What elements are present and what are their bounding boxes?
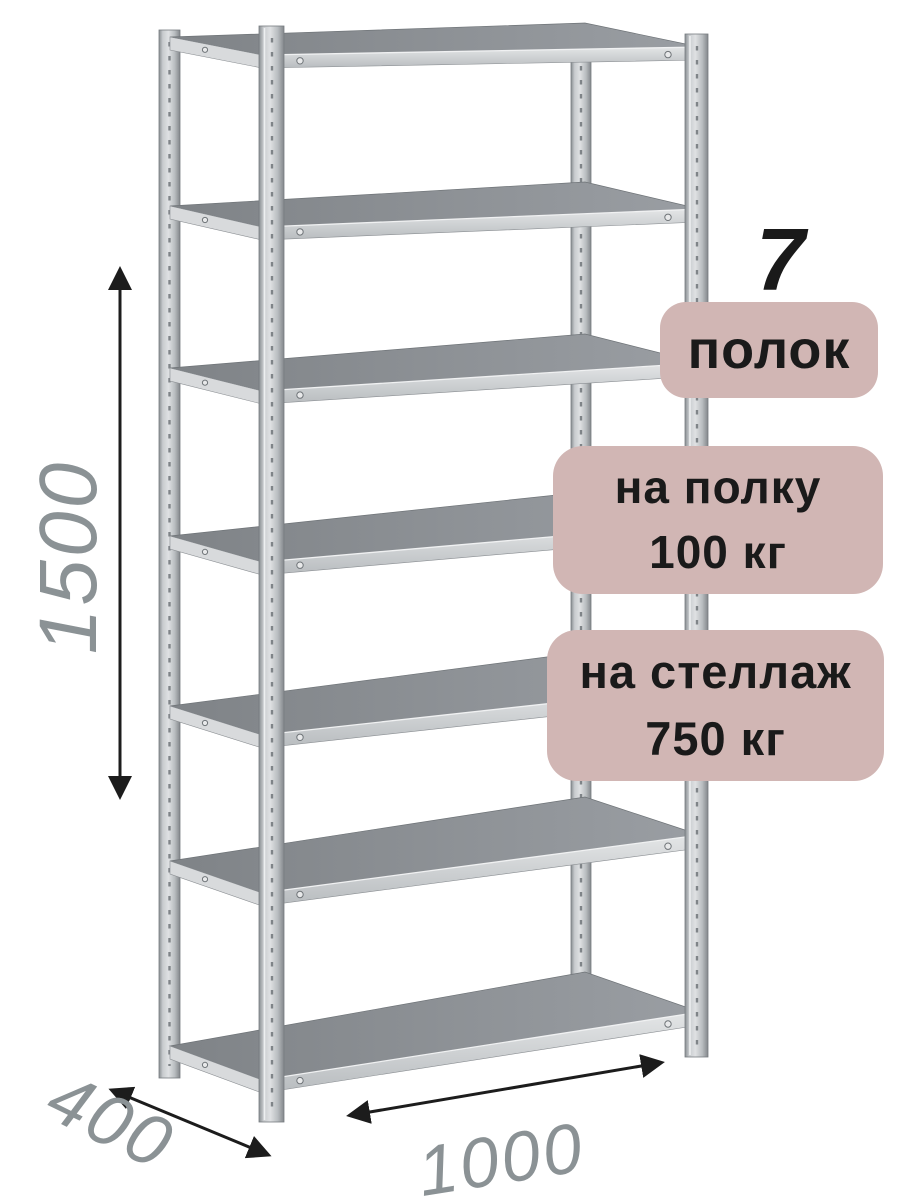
shelf-2 <box>170 182 700 240</box>
post-back-left <box>159 30 180 1078</box>
per-shelf-capacity-line2: 100 кг <box>649 520 787 585</box>
screw <box>202 877 207 882</box>
screw <box>665 214 671 220</box>
shelf-count-badge: полок <box>660 302 878 398</box>
shelf-count-number: 7 <box>733 216 828 304</box>
width-value: 1000 <box>412 1108 590 1200</box>
shelf-6 <box>170 797 700 906</box>
screw <box>202 380 207 385</box>
screw <box>202 217 207 222</box>
screw <box>202 549 207 554</box>
per-rack-capacity-line2: 750 кг <box>645 706 786 773</box>
screw <box>202 1062 207 1067</box>
screw <box>297 891 303 897</box>
shelf-1 <box>170 23 700 68</box>
screw <box>202 47 207 52</box>
per-rack-capacity-badge: на стеллаж 750 кг <box>547 630 884 781</box>
per-shelf-capacity-line1: на полку <box>615 455 822 520</box>
shelf-count-label: полок <box>688 319 851 381</box>
screw <box>297 734 303 740</box>
product-image: 1500 400 1000 7 полок на полку 100 кг на… <box>0 0 900 1200</box>
height-value: 1500 <box>23 460 114 654</box>
width-dimension: 1000 <box>352 1063 659 1200</box>
screw <box>297 1077 303 1083</box>
screw <box>297 562 303 568</box>
screw <box>665 1021 671 1027</box>
screw <box>297 229 303 235</box>
per-shelf-capacity-badge: на полку 100 кг <box>553 446 883 594</box>
per-rack-capacity-line1: на стеллаж <box>579 639 851 706</box>
shelf-7 <box>170 972 700 1093</box>
screw <box>297 58 303 64</box>
screw <box>665 843 671 849</box>
height-dimension: 1500 <box>23 272 120 794</box>
screw <box>297 392 303 398</box>
post-front-left <box>259 26 284 1122</box>
screw <box>202 720 207 725</box>
shelving-rack-illustration: 1500 400 1000 <box>0 0 900 1200</box>
shelf-3 <box>170 334 700 404</box>
screw <box>665 51 671 57</box>
